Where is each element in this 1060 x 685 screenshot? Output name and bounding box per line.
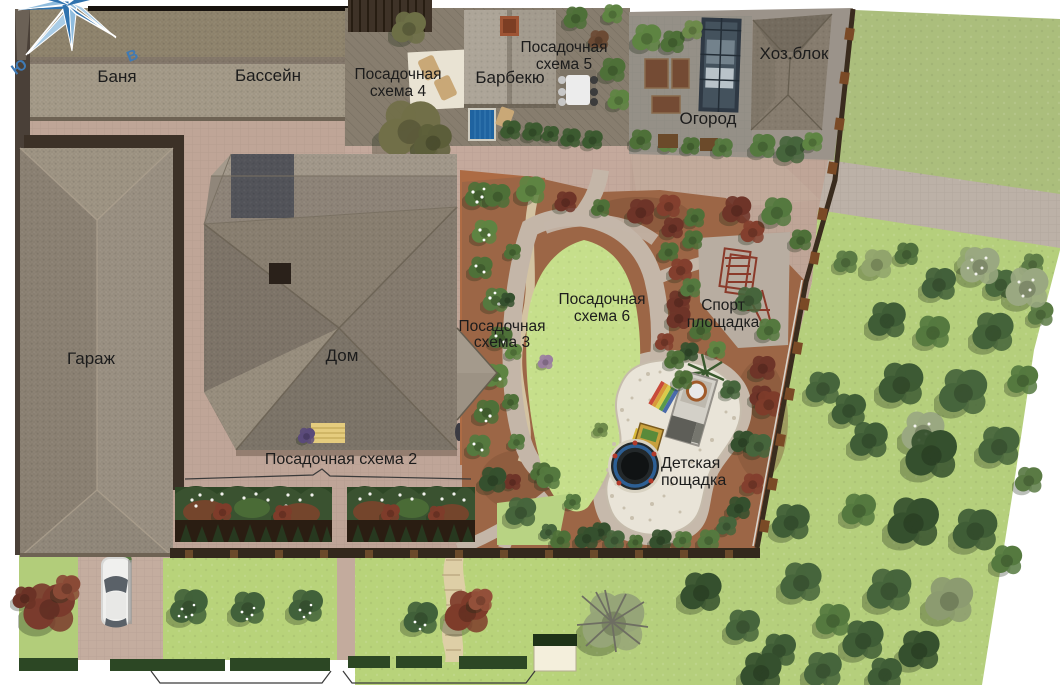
svg-text:Хоз.блок: Хоз.блок: [760, 44, 829, 63]
svg-text:Посадочная: Посадочная: [520, 39, 607, 56]
svg-text:схема 5: схема 5: [536, 56, 592, 73]
svg-text:Гараж: Гараж: [67, 349, 116, 368]
svg-text:Бассейн: Бассейн: [235, 66, 301, 85]
svg-text:Посадочная: Посадочная: [558, 291, 645, 308]
svg-text:Спорт: Спорт: [701, 297, 745, 314]
svg-text:схема 6: схема 6: [574, 308, 630, 325]
svg-text:Детская: Детская: [661, 455, 720, 472]
svg-text:Дом: Дом: [326, 346, 359, 365]
svg-text:Барбекю: Барбекю: [475, 68, 545, 87]
svg-text:Посадочная схема 2: Посадочная схема 2: [265, 451, 417, 468]
svg-text:схема 3: схема 3: [474, 334, 530, 351]
svg-text:Посадочная: Посадочная: [354, 66, 441, 83]
svg-text:пощадка: пощадка: [661, 472, 726, 489]
svg-text:Посадочная: Посадочная: [458, 318, 545, 335]
svg-text:площадка: площадка: [687, 314, 760, 331]
svg-text:Огород: Огород: [680, 109, 737, 128]
svg-text:Баня: Баня: [97, 67, 136, 86]
svg-text:схема 4: схема 4: [370, 83, 427, 100]
